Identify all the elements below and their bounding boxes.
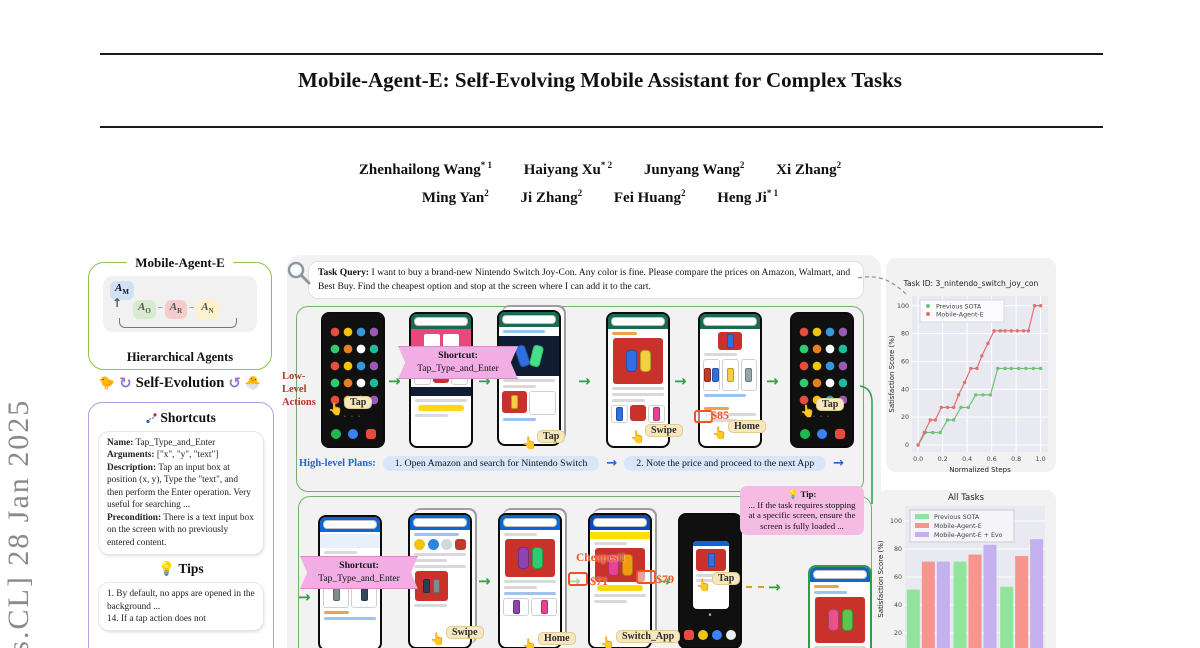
plan-step-1: 1. Open Amazon and search for Nintendo S… <box>383 456 600 471</box>
author: Heng Ji* 1 <box>717 190 778 206</box>
swipe-action-label: Swipe <box>446 626 484 639</box>
all-tasks-chart-panel: All Tasks 20406080100Previous SOTAMobile… <box>876 490 1056 648</box>
app-header <box>608 314 668 329</box>
phone-screenshot-android-home: • • • <box>790 312 854 448</box>
app-header <box>810 567 870 582</box>
subagents-row: AO – AR – AN <box>133 300 219 319</box>
svg-text:Satisfaction Score (%): Satisfaction Score (%) <box>888 335 896 413</box>
authors-row-2: Ming Yan2 Ji Zhang2 Fei Huang2 Heng Ji* … <box>0 188 1200 207</box>
pointing-hand-icon: 👆 <box>600 636 615 648</box>
product-image <box>815 597 865 643</box>
all-tasks-bar-chart: 20406080100Previous SOTAMobile-Agent-EMo… <box>876 504 1056 648</box>
self-evolution-label: Self-Evolution <box>136 375 225 392</box>
chick-icon: 🐤 <box>99 375 115 391</box>
tap-action-label: Tap <box>537 430 565 443</box>
plan-arrow-icon: → <box>606 456 617 471</box>
author: Ming Yan2 <box>422 190 489 206</box>
author: Fei Huang2 <box>614 190 686 206</box>
product-image <box>415 571 448 601</box>
svg-text:100: 100 <box>890 518 902 525</box>
hierarchical-agents-label: Hierarchical Agents <box>89 350 271 365</box>
app-header <box>410 515 470 530</box>
svg-text:80: 80 <box>894 546 902 553</box>
author: Xi Zhang2 <box>776 162 841 178</box>
shortcut-bubble: Shortcut:Tap_Type_and_Enter <box>300 556 418 589</box>
low-level-actions-label: Low-Level Actions <box>282 370 318 409</box>
bestbuy-yellow-tag <box>590 532 650 539</box>
app-header <box>590 515 650 530</box>
plan-arrow-icon: → <box>833 456 844 471</box>
phone-screenshot-amazon-home <box>409 312 473 448</box>
notetaker-agent-badge: AN <box>196 300 218 319</box>
price-highlight-box <box>636 570 656 584</box>
shortcut-bubble: Shortcut:Tap_Type_and_Enter <box>398 346 518 379</box>
bestbuy-price-annotation: $79 <box>656 572 674 587</box>
next-step-arrow-icon: → <box>298 588 311 606</box>
svg-text:1.0: 1.0 <box>1036 456 1046 463</box>
product-image <box>613 338 663 384</box>
app-header <box>499 312 559 327</box>
close-all-bar: ■ <box>680 612 740 617</box>
paper-title: Mobile-Agent-E: Self-Evolving Mobile Ass… <box>0 68 1200 93</box>
dock <box>323 429 383 439</box>
svg-text:0.4: 0.4 <box>962 456 972 463</box>
app-header <box>411 314 471 329</box>
svg-text:40: 40 <box>894 602 902 609</box>
plan-step-2: 2. Note the price and proceed to the nex… <box>624 456 826 471</box>
tap-action-label: Tap <box>816 398 844 411</box>
next-step-arrow-icon: → <box>388 372 401 390</box>
evolution-arrow-icon: ↺ <box>228 374 241 392</box>
next-step-arrow-icon: → <box>578 372 591 390</box>
top-rule <box>100 53 1103 55</box>
tips-card: 1. By default, no apps are opened in the… <box>99 583 263 630</box>
high-level-plans-label: High-level Plans: <box>299 458 376 469</box>
author: Haiyang Xu* 2 <box>524 162 612 178</box>
price-highlight-box <box>568 572 588 586</box>
pointing-hand-icon: 👆 <box>800 404 815 419</box>
lightbulb-icon: 💡 <box>158 561 175 576</box>
hierarchical-agents-diagram: AM ↑ AO – AR – AN <box>103 276 257 332</box>
phone-screenshot-android-home: • • • <box>321 312 385 448</box>
shortcuts-header: Shortcuts <box>89 410 273 426</box>
author: Zhenhailong Wang* 1 <box>359 162 492 178</box>
phone-screenshot-final-cart <box>808 565 872 648</box>
framework-box: Mobile-Agent-E AM ↑ AO – AR – AN Hierarc… <box>88 262 272 370</box>
shortcut-route-icon <box>146 413 157 423</box>
arxiv-side-label: [cs.CL] 28 Jan 2025 <box>2 268 46 648</box>
magnifier-icon <box>286 260 312 286</box>
svg-text:Mobile-Agent-E + Evo: Mobile-Agent-E + Evo <box>934 532 1003 539</box>
svg-text:60: 60 <box>894 574 902 581</box>
query-to-chart-connector <box>856 266 914 304</box>
svg-text:0: 0 <box>905 442 909 449</box>
svg-text:Normalized Steps: Normalized Steps <box>949 466 1011 474</box>
author: Ji Zhang2 <box>521 190 583 206</box>
switch-app-action-label: Switch_App <box>616 630 680 643</box>
hatching-chick-icon: 🐣 <box>245 375 261 391</box>
operator-agent-badge: AO <box>133 300 156 319</box>
shortcut-card: Name: Tap_Type_and_Enter Arguments: ["x"… <box>99 432 263 554</box>
reflector-agent-badge: AR <box>165 300 187 319</box>
tips-header: 💡 Tips <box>89 561 273 577</box>
app-header <box>700 314 760 329</box>
high-level-plans-row: High-level Plans: 1. Open Amazon and sea… <box>299 456 875 471</box>
home-action-label: Home <box>728 420 766 433</box>
pointing-hand-icon: 👆 <box>712 426 727 441</box>
pointing-hand-icon: 👆 <box>430 632 445 647</box>
next-step-arrow-icon: → <box>478 572 491 590</box>
satisfaction-line-chart: 0.00.20.40.60.81.0020406080100Previous S… <box>886 290 1056 474</box>
svg-text:Satisfaction Score (%): Satisfaction Score (%) <box>877 540 885 618</box>
pointing-hand-icon: 👆 <box>696 578 711 593</box>
evolution-arrow-icon: ↻ <box>119 374 132 392</box>
category-icons <box>412 539 468 550</box>
bar-chart-title: All Tasks <box>876 493 1056 503</box>
home-action-label: Home <box>538 632 576 645</box>
cheapest-annotation: Cheapest! <box>576 552 625 564</box>
svg-text:40: 40 <box>901 386 909 393</box>
dock <box>680 630 740 640</box>
svg-text:0.2: 0.2 <box>938 456 948 463</box>
svg-text:Previous SOTA: Previous SOTA <box>934 514 980 521</box>
tap-action-label: Tap <box>344 396 372 409</box>
svg-text:0.8: 0.8 <box>1011 456 1021 463</box>
task-query-box: Task Query: I want to buy a brand-new Ni… <box>308 261 864 299</box>
agent-loop-line <box>119 318 237 328</box>
svg-text:Previous SOTA: Previous SOTA <box>936 304 982 311</box>
paper-page: Mobile-Agent-E: Self-Evolving Mobile Ass… <box>0 0 1200 648</box>
dock <box>792 429 852 439</box>
svg-text:20: 20 <box>894 630 902 637</box>
svg-text:0.0: 0.0 <box>913 456 923 463</box>
pointing-hand-icon: 👆 <box>328 402 343 417</box>
tap-action-label: Tap <box>712 572 740 585</box>
dashed-connector <box>746 586 764 588</box>
pointing-hand-icon: 👆 <box>522 638 537 648</box>
pointing-hand-icon: 👆 <box>522 436 537 451</box>
svg-text:80: 80 <box>901 331 909 338</box>
svg-text:Mobile-Agent-E: Mobile-Agent-E <box>934 523 982 530</box>
amazon-price-annotation: $85 <box>711 408 729 423</box>
walmart-price-annotation: $71 <box>590 574 608 589</box>
next-step-arrow-icon: → <box>674 372 687 390</box>
title-rule <box>100 126 1103 128</box>
lightbulb-icon: 💡 <box>788 489 799 499</box>
tip-bubble: 💡 Tip: ... If the task requires stopping… <box>740 486 864 535</box>
next-step-arrow-icon: → <box>768 578 781 596</box>
app-header <box>320 517 380 532</box>
up-arrow-icon: ↑ <box>112 296 122 310</box>
app-header <box>500 515 560 530</box>
framework-title: Mobile-Agent-E <box>89 254 271 272</box>
product-thumb <box>718 332 742 350</box>
svg-text:20: 20 <box>901 414 909 421</box>
svg-text:0.6: 0.6 <box>987 456 997 463</box>
author: Junyang Wang2 <box>644 162 745 178</box>
yellow-button <box>418 405 464 411</box>
next-step-arrow-icon: → <box>766 372 779 390</box>
phone-screenshot-walmart-product <box>498 513 562 648</box>
swipe-action-label: Swipe <box>645 424 683 437</box>
svg-text:Mobile-Agent-E: Mobile-Agent-E <box>936 312 984 319</box>
pointing-hand-icon: 👆 <box>630 430 645 445</box>
svg-text:60: 60 <box>901 358 909 365</box>
product-image <box>505 539 555 577</box>
authors-row-1: Zhenhailong Wang* 1 Haiyang Xu* 2 Junyan… <box>0 160 1200 179</box>
self-evolution-row: 🐤 ↻ Self-Evolution ↺ 🐣 <box>82 374 278 392</box>
tips-shortcuts-panel: Shortcuts Name: Tap_Type_and_Enter Argum… <box>88 402 274 648</box>
